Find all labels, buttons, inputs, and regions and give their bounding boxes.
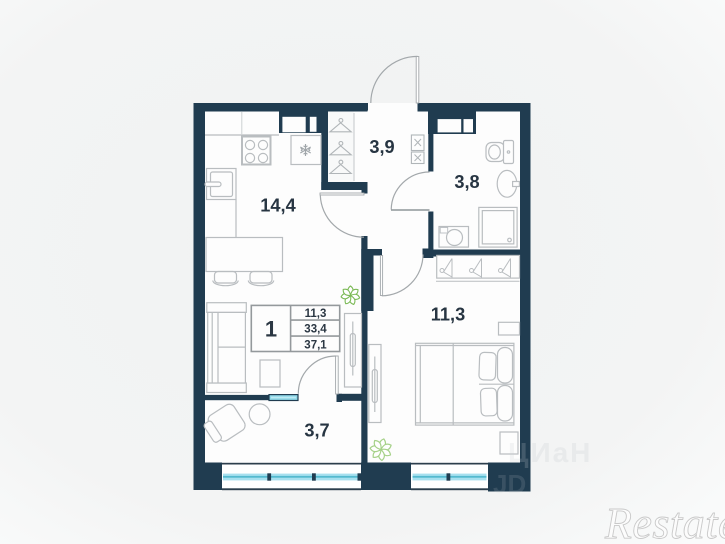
svg-text:3,7: 3,7: [304, 420, 329, 440]
svg-text:33,4: 33,4: [304, 324, 327, 336]
svg-text:1: 1: [265, 317, 277, 342]
svg-text:3,8: 3,8: [454, 172, 479, 192]
svg-text:Restate: Restate: [604, 499, 725, 544]
svg-text:3,9: 3,9: [369, 137, 394, 157]
svg-text:11,3: 11,3: [431, 304, 465, 324]
svg-text:JD: JD: [493, 469, 526, 499]
svg-text:37,1: 37,1: [304, 339, 327, 351]
svg-text:11,3: 11,3: [305, 308, 327, 320]
svg-text:14,4: 14,4: [260, 195, 296, 215]
